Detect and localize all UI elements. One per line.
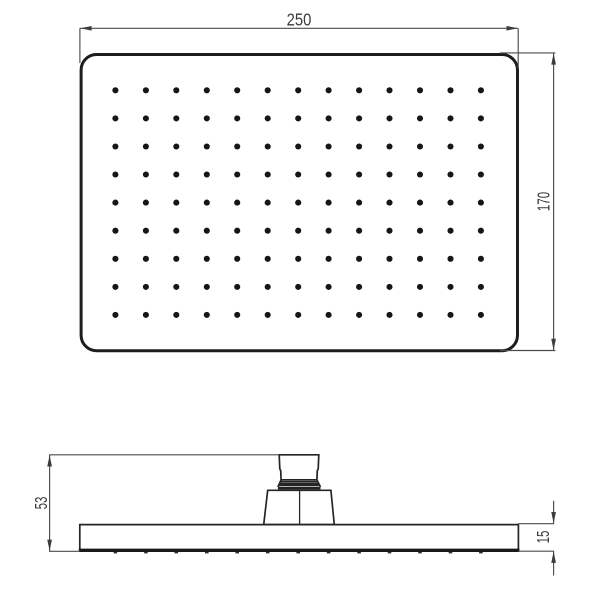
svg-text:15: 15 <box>535 531 554 544</box>
svg-text:170: 170 <box>535 192 554 211</box>
svg-text:250: 250 <box>287 11 312 30</box>
svg-text:53: 53 <box>33 497 52 510</box>
